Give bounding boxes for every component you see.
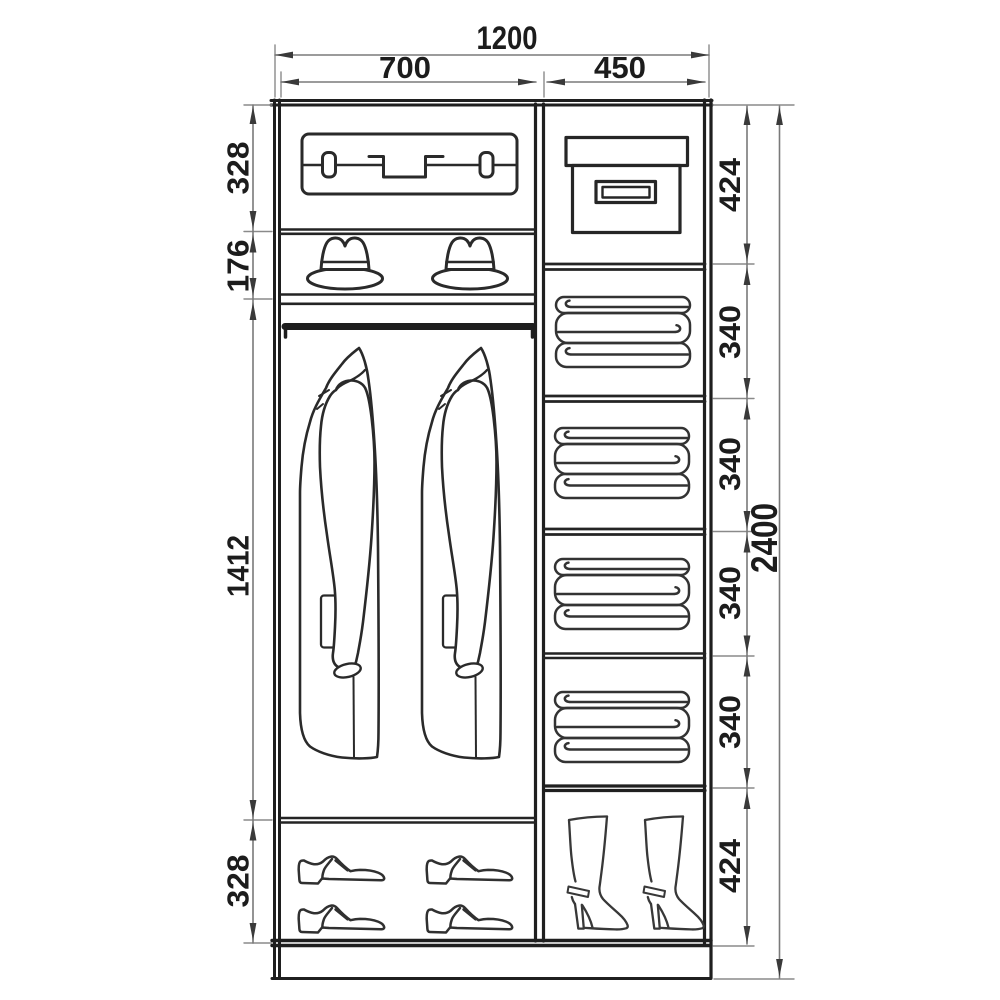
svg-text:340: 340	[714, 695, 747, 749]
svg-text:2400: 2400	[744, 503, 785, 573]
svg-text:1412: 1412	[221, 535, 256, 597]
svg-text:700: 700	[379, 50, 431, 85]
svg-text:1200: 1200	[477, 20, 538, 56]
svg-text:450: 450	[594, 50, 646, 85]
svg-text:340: 340	[714, 437, 747, 491]
svg-text:340: 340	[714, 566, 747, 620]
svg-text:328: 328	[221, 142, 256, 195]
svg-text:328: 328	[221, 855, 256, 908]
svg-text:340: 340	[714, 305, 747, 359]
svg-text:176: 176	[221, 240, 256, 293]
svg-text:424: 424	[714, 158, 747, 212]
svg-text:424: 424	[714, 839, 747, 893]
